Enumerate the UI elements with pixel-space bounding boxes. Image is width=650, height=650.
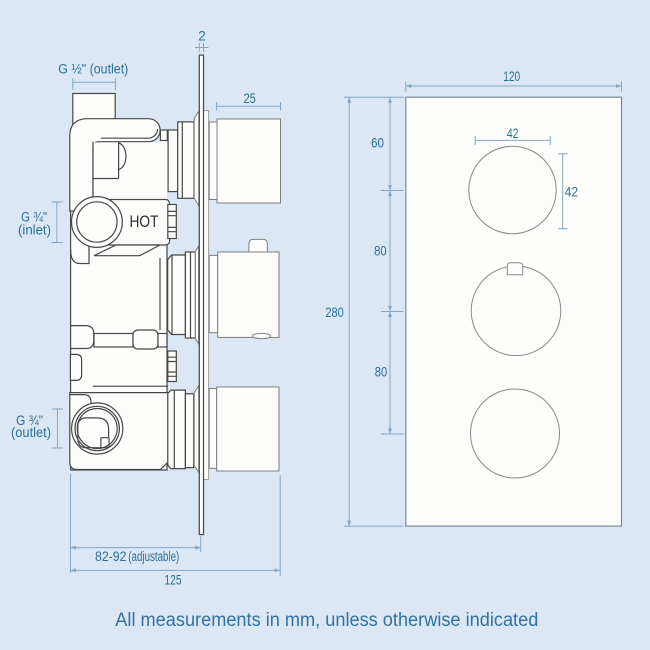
svg-text:82-92: 82-92: [95, 549, 127, 564]
svg-text:42: 42: [507, 126, 519, 141]
svg-text:All measurements in mm, unless: All measurements in mm, unless otherwise…: [115, 610, 538, 631]
svg-text:HOT: HOT: [130, 213, 159, 231]
svg-text:80: 80: [374, 244, 387, 259]
svg-text:25: 25: [243, 91, 256, 106]
svg-text:125: 125: [165, 573, 182, 588]
svg-text:G ½" (outlet): G ½" (outlet): [58, 62, 128, 77]
svg-text:(adjustable): (adjustable): [128, 549, 179, 564]
svg-text:(inlet): (inlet): [18, 223, 51, 238]
svg-text:2: 2: [198, 29, 206, 44]
svg-text:(outlet): (outlet): [11, 425, 51, 440]
svg-text:60: 60: [371, 136, 384, 151]
svg-text:42: 42: [565, 185, 579, 200]
svg-text:280: 280: [325, 305, 344, 320]
svg-text:120: 120: [503, 69, 520, 84]
svg-text:80: 80: [375, 365, 388, 380]
